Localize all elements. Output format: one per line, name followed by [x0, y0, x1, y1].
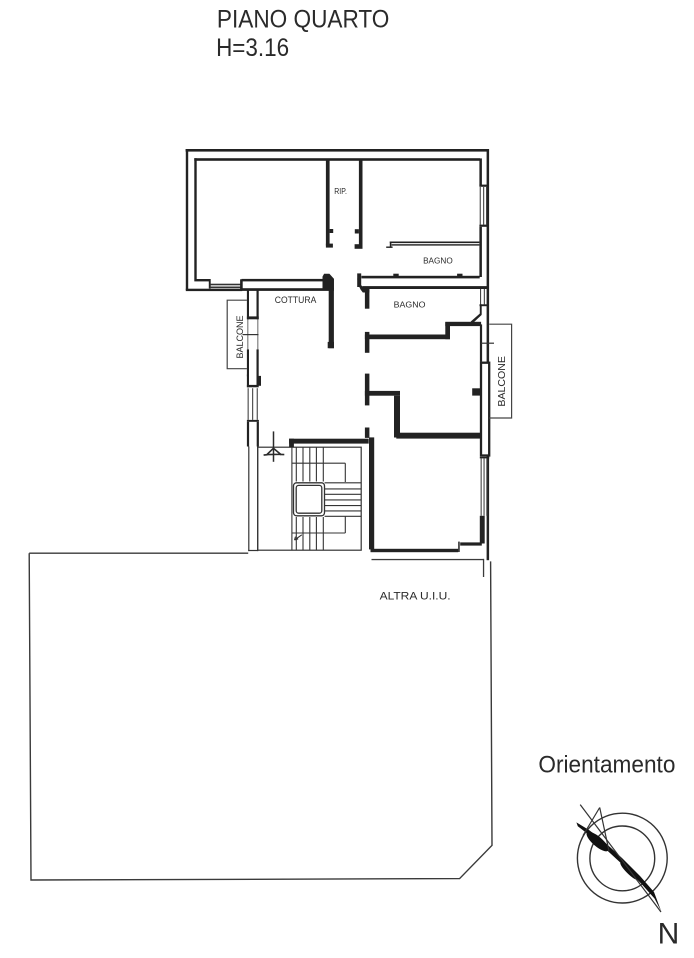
- svg-text:BALCONE: BALCONE: [497, 356, 508, 407]
- svg-text:BALCONE: BALCONE: [235, 316, 245, 359]
- svg-text:ALTRA U.I.U.: ALTRA U.I.U.: [380, 591, 451, 603]
- svg-text:BAGNO: BAGNO: [394, 299, 426, 309]
- svg-text:H=3.16: H=3.16: [216, 34, 289, 62]
- svg-text:Orientamento: Orientamento: [538, 752, 675, 779]
- svg-text:BAGNO: BAGNO: [423, 256, 453, 266]
- svg-text:RIP.: RIP.: [334, 186, 347, 196]
- svg-text:N: N: [658, 918, 680, 951]
- svg-text:PIANO QUARTO: PIANO QUARTO: [217, 6, 390, 34]
- svg-text:COTTURA: COTTURA: [275, 295, 317, 305]
